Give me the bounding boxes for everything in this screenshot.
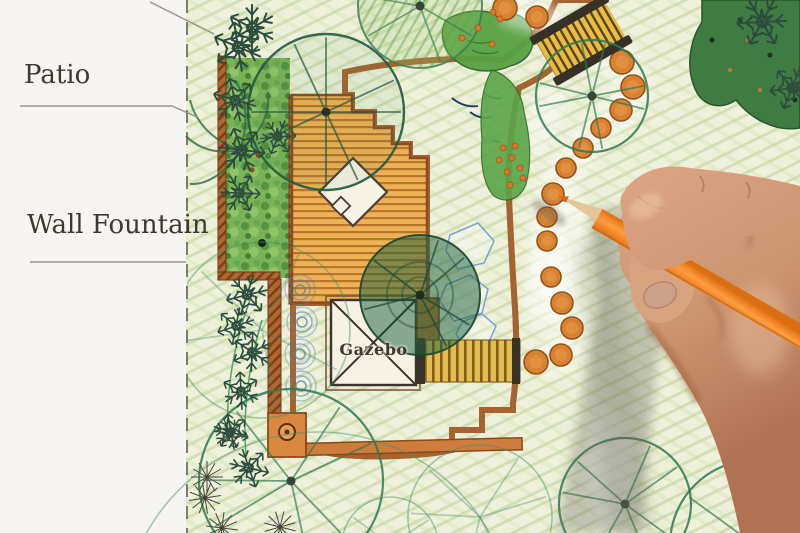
berry-dot	[517, 165, 523, 171]
stepping-stone	[610, 99, 632, 121]
berry-dot	[475, 25, 481, 31]
stepping-stone	[526, 6, 548, 28]
berry-dot	[490, 9, 496, 15]
stepping-stone	[550, 344, 572, 366]
berry-dot	[500, 145, 506, 151]
berry-dot	[504, 169, 510, 175]
stepping-stone	[551, 292, 573, 314]
landscape-plan-drawing	[0, 0, 800, 533]
berry-dot	[489, 41, 495, 47]
stepping-stone	[610, 50, 634, 74]
stepping-stone	[541, 267, 561, 287]
tree-canopy	[360, 235, 480, 355]
stepping-stone	[537, 231, 557, 251]
stepping-stone	[561, 317, 583, 339]
berry-dot	[509, 155, 515, 161]
berry-dot	[459, 35, 465, 41]
tree-canopy	[248, 34, 404, 190]
stepping-stone	[542, 183, 564, 205]
stepping-stone	[591, 118, 611, 138]
berry-dot	[512, 143, 518, 149]
berry-dot	[497, 16, 503, 22]
stepping-stone	[573, 138, 593, 158]
stepping-stone	[524, 350, 548, 374]
stepping-stone	[493, 0, 517, 20]
berry-dot	[507, 182, 513, 188]
berry-dot	[496, 157, 502, 163]
photo-of-landscape-plan: Patio Wall Fountain Gazebo	[0, 0, 800, 533]
stepping-stone	[556, 158, 576, 178]
berry-dot	[520, 175, 526, 181]
